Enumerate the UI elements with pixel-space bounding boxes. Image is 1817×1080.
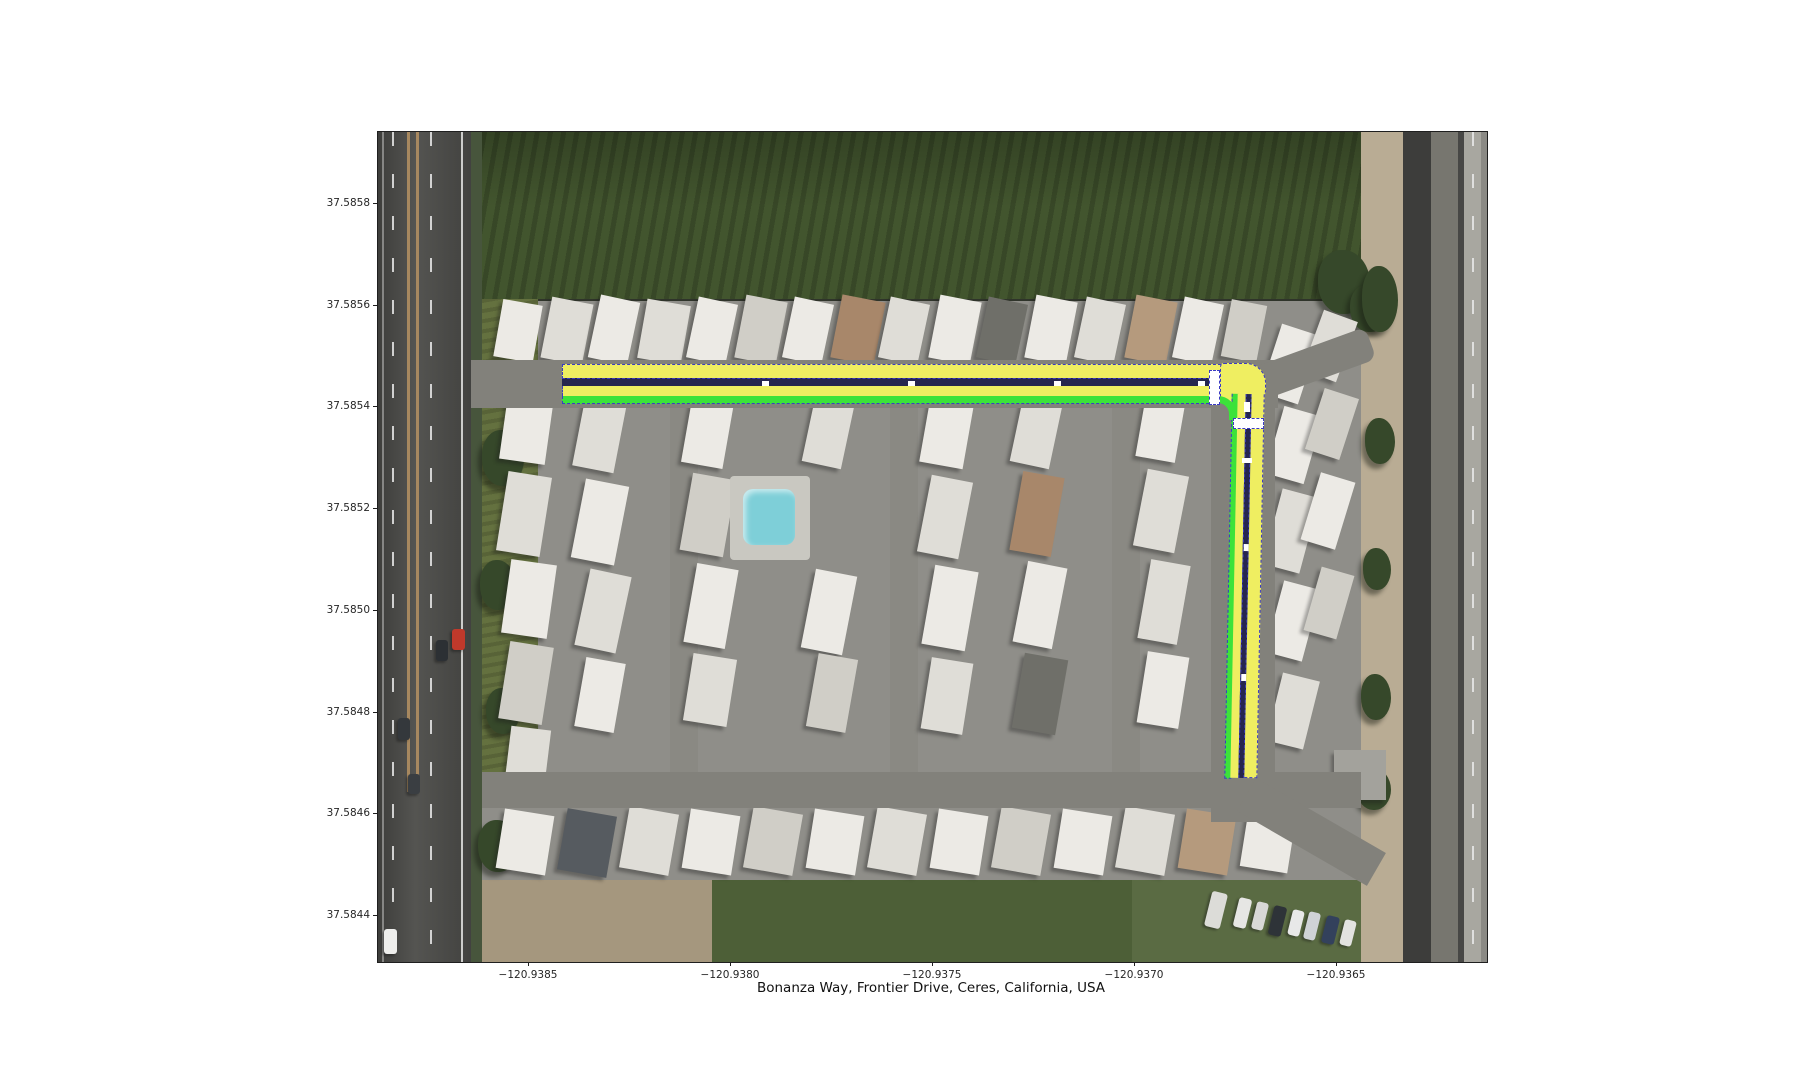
building <box>1221 299 1267 363</box>
plot-title: Bonanza Way, Frontier Drive, Ceres, Cali… <box>631 980 1231 996</box>
dirt-patch <box>482 880 712 962</box>
building <box>801 569 857 656</box>
building <box>921 565 978 651</box>
map-plot-area <box>377 131 1488 963</box>
building <box>557 808 617 878</box>
building <box>928 295 981 366</box>
building <box>930 808 989 875</box>
building <box>991 806 1051 876</box>
building <box>1305 388 1359 460</box>
y-tick-label: 37.5850 <box>300 603 370 617</box>
swimming-pool <box>743 489 795 545</box>
y-tick-mark <box>373 915 377 916</box>
transport-corridor-strip <box>1361 132 1403 962</box>
vehicle <box>384 929 397 954</box>
y-tick-label: 37.5854 <box>300 399 370 413</box>
y-tick-label: 37.5856 <box>300 298 370 312</box>
x-tick-label: −120.9365 <box>1291 968 1381 982</box>
transport-corridor-strip <box>1481 132 1487 962</box>
park-alley <box>1112 380 1140 772</box>
transport-corridor-strip <box>1431 132 1458 962</box>
vehicle <box>452 629 465 650</box>
route-lane-north <box>562 364 1251 379</box>
building <box>496 808 555 875</box>
crosswalk-marker-horizontal-road <box>1209 370 1220 405</box>
y-tick-label: 37.5846 <box>300 806 370 820</box>
building <box>540 297 593 366</box>
lane-marking <box>392 132 394 962</box>
vehicle <box>398 718 410 740</box>
x-tick-mark <box>730 962 731 966</box>
building <box>1301 472 1356 549</box>
building <box>588 295 640 366</box>
tree <box>1365 418 1395 464</box>
building <box>683 653 737 727</box>
grass-field <box>482 132 1361 301</box>
building <box>1137 651 1190 729</box>
building <box>782 297 834 366</box>
park-alley <box>890 380 918 772</box>
building <box>806 653 858 733</box>
edge-line <box>382 132 384 962</box>
building <box>1172 297 1224 366</box>
grass-patch <box>712 880 1132 962</box>
building <box>501 559 557 639</box>
building <box>921 657 974 735</box>
intersection-dash <box>1244 402 1250 412</box>
building <box>806 808 865 875</box>
edge-line <box>461 132 463 962</box>
building <box>1137 559 1190 645</box>
x-tick-mark <box>1336 962 1337 966</box>
building <box>1012 653 1069 735</box>
building <box>574 568 631 653</box>
crosswalk-marker-vertical-road <box>1233 418 1264 429</box>
x-tick-label: −120.9385 <box>483 968 573 982</box>
route-lane-south <box>562 386 1251 396</box>
building <box>1013 561 1068 649</box>
vehicle <box>436 640 448 661</box>
building <box>1115 806 1175 876</box>
corridor-lane-marking <box>1472 132 1474 962</box>
matplotlib-figure: 37.585837.585637.585437.585237.585037.58… <box>0 0 1817 1080</box>
building <box>867 806 927 876</box>
tree <box>1363 548 1391 590</box>
building <box>574 657 626 733</box>
y-tick-label: 37.5852 <box>300 501 370 515</box>
tree <box>1361 674 1391 720</box>
y-tick-mark <box>373 406 377 407</box>
building <box>1024 295 1077 366</box>
transport-corridor-strip <box>1403 132 1431 962</box>
route-edge-green <box>562 396 1219 404</box>
building <box>1304 567 1355 640</box>
y-tick-label: 37.5844 <box>300 908 370 922</box>
y-tick-label: 37.5848 <box>300 705 370 719</box>
y-tick-mark <box>373 610 377 611</box>
building <box>1009 471 1064 557</box>
y-tick-mark <box>373 813 377 814</box>
building <box>637 299 691 366</box>
tree <box>1362 266 1398 332</box>
building <box>1054 808 1113 875</box>
y-tick-mark <box>373 712 377 713</box>
building <box>878 297 930 366</box>
stop-bar <box>1242 458 1252 463</box>
x-tick-mark <box>1134 962 1135 966</box>
building <box>1124 295 1177 366</box>
building <box>571 479 629 566</box>
building <box>682 808 741 875</box>
y-tick-mark <box>373 305 377 306</box>
y-tick-mark <box>373 508 377 509</box>
x-tick-mark <box>932 962 933 966</box>
route-overlay-horizontal <box>562 363 1250 404</box>
median-stripe <box>416 132 419 792</box>
building <box>734 295 787 366</box>
building <box>1074 297 1126 366</box>
median-stripe <box>407 132 410 792</box>
building <box>917 475 973 560</box>
building <box>1133 469 1189 554</box>
x-tick-mark <box>528 962 529 966</box>
lane-marking <box>430 132 432 962</box>
building <box>686 297 738 366</box>
y-tick-label: 37.5858 <box>300 196 370 210</box>
building <box>976 297 1028 366</box>
y-tick-mark <box>373 203 377 204</box>
building <box>619 806 679 876</box>
vehicle <box>408 774 420 794</box>
building <box>743 806 803 876</box>
